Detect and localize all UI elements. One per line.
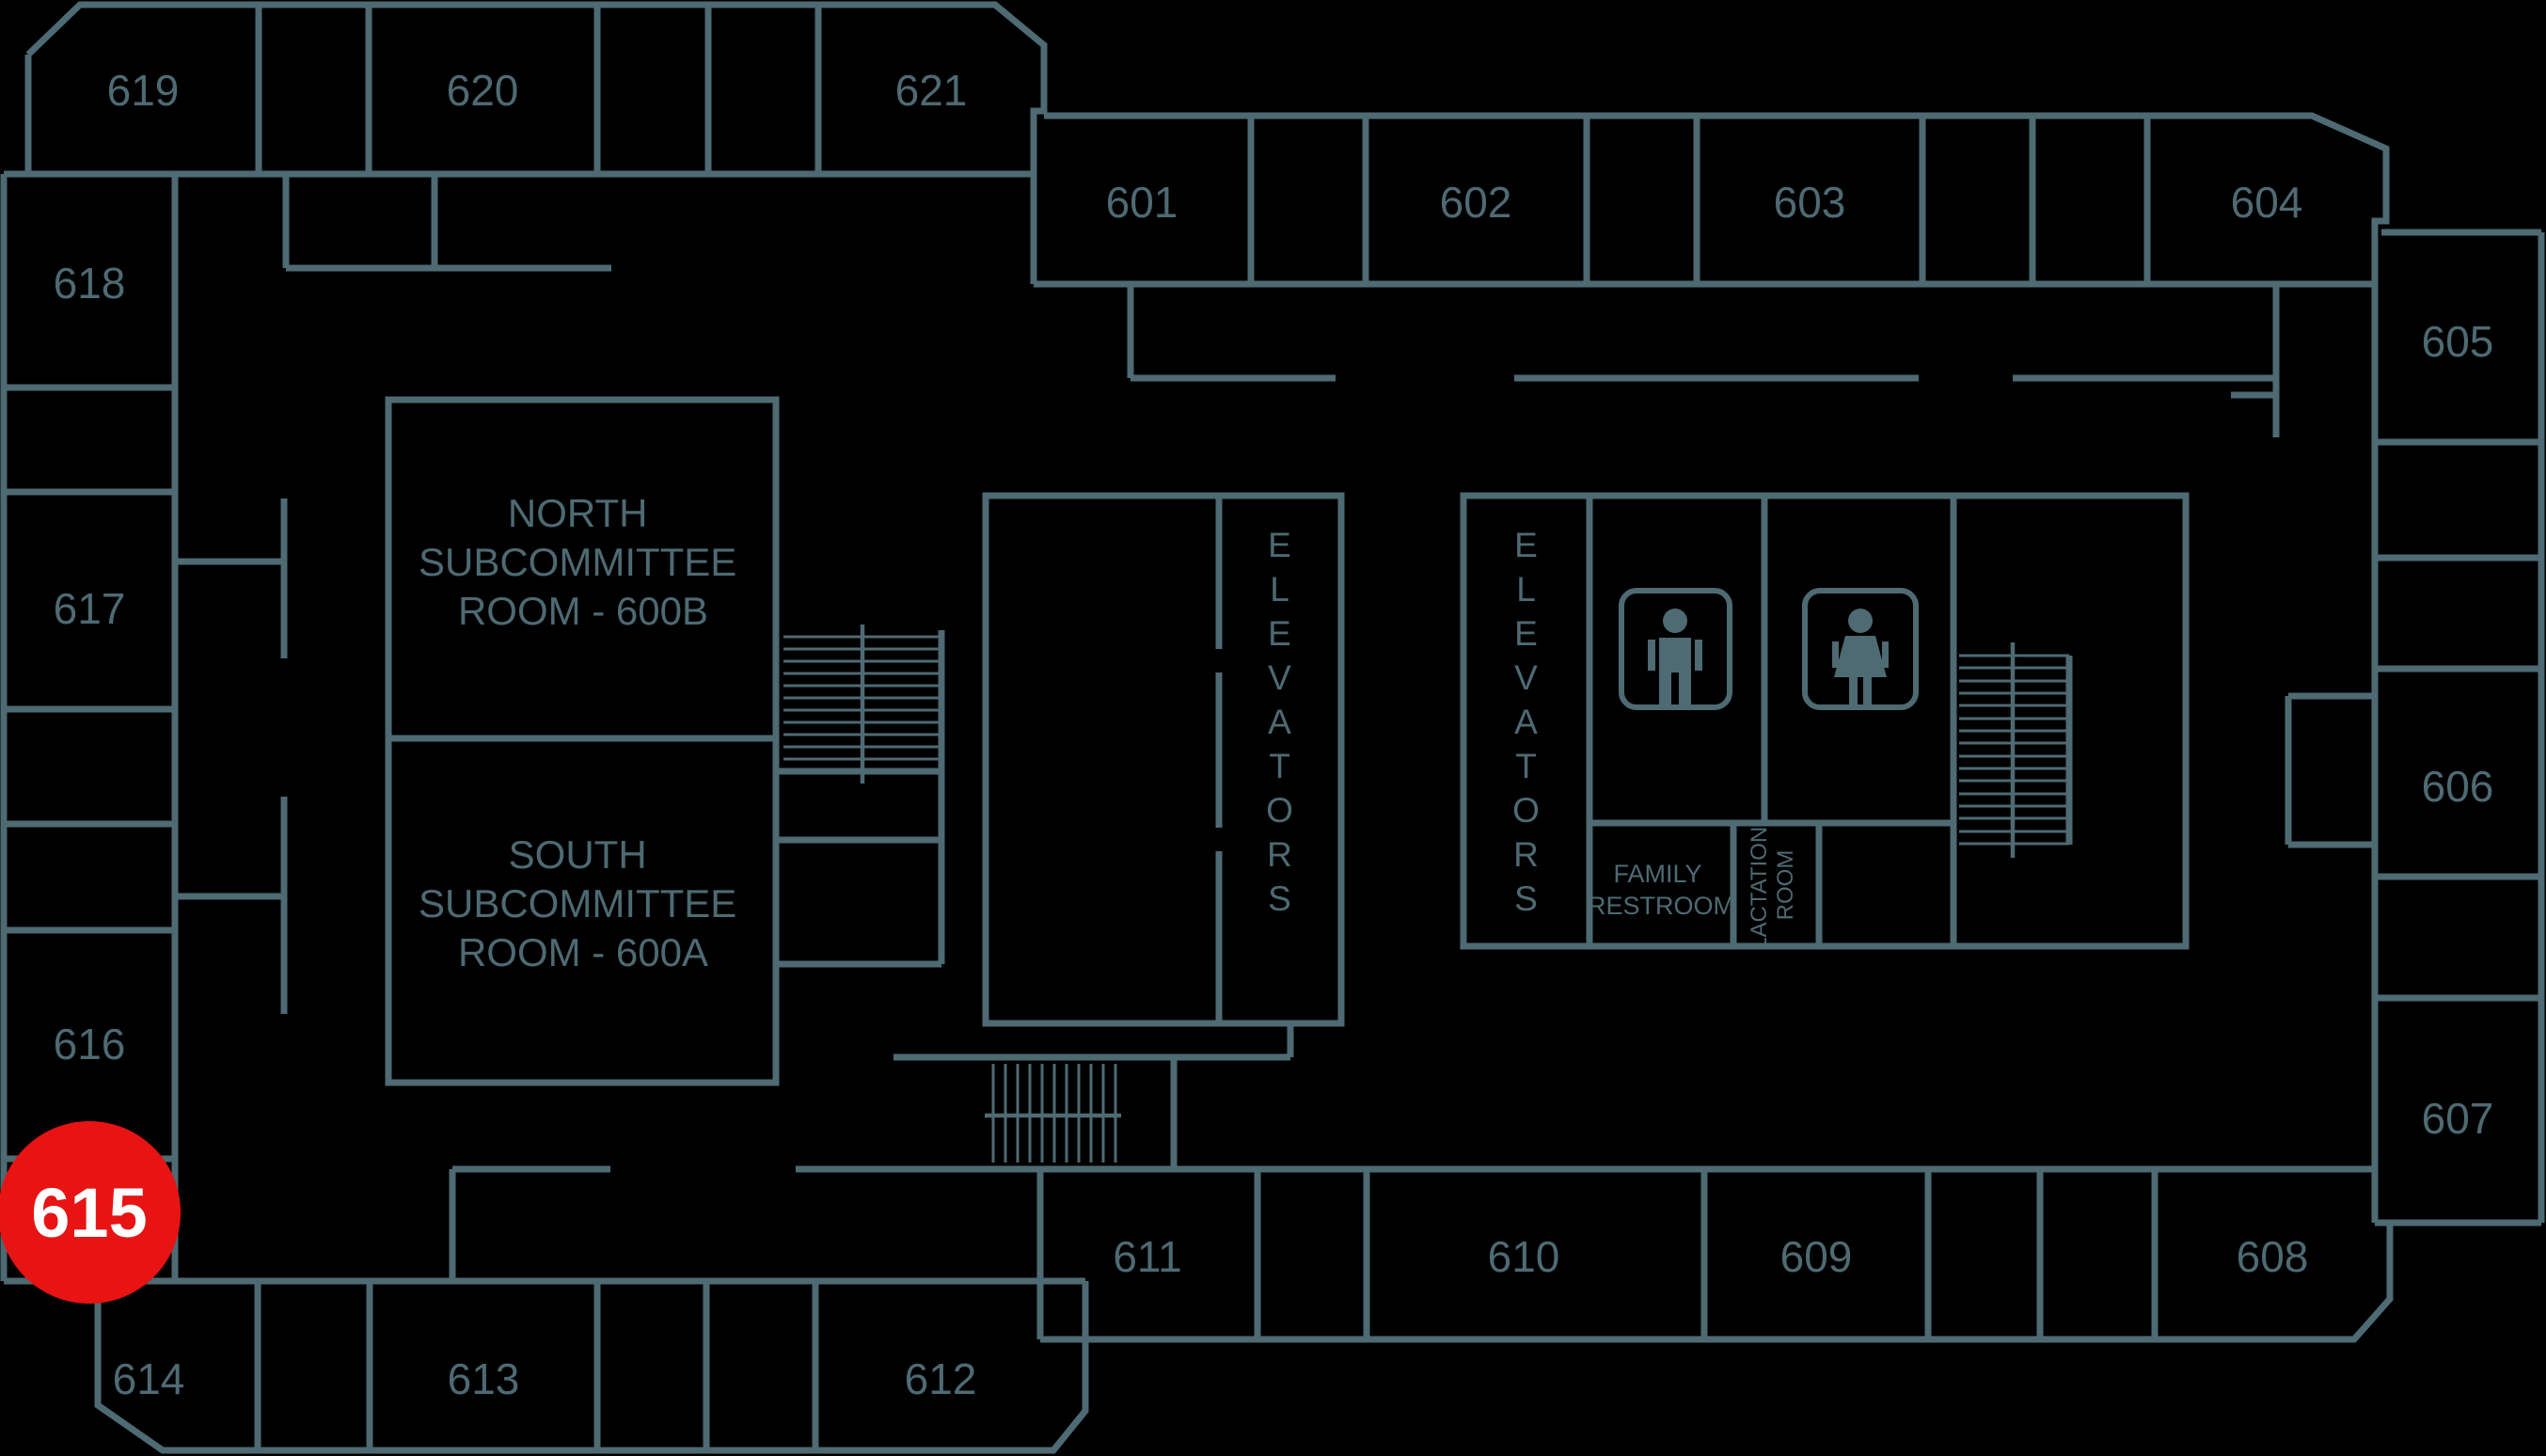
room-618-label: 618 (54, 259, 126, 308)
room-620-label: 620 (447, 66, 519, 115)
room-604-label: 604 (2231, 178, 2303, 227)
room-621-label: 621 (895, 66, 968, 115)
room-617-label: 617 (54, 584, 126, 633)
elevators-left-label: ELEVATORS (1266, 526, 1294, 918)
room-602-label: 602 (1440, 178, 1512, 227)
room-616-label: 616 (54, 1020, 126, 1068)
room-614-label: 614 (113, 1354, 185, 1403)
lactation-room-label: LACTATION ROOM (1747, 820, 1798, 950)
room-610-label: 610 (1488, 1232, 1560, 1281)
room-601-label: 601 (1106, 178, 1178, 227)
room-615-marker: 615 (0, 1121, 181, 1304)
room-609-label: 609 (1780, 1232, 1853, 1281)
room-606-label: 606 (2422, 762, 2494, 811)
women-restroom-icon (1805, 591, 1916, 707)
room-608-label: 608 (2237, 1232, 2309, 1281)
room-607-label: 607 (2422, 1094, 2494, 1143)
room-612-label: 612 (905, 1354, 977, 1403)
staircase-right (1959, 642, 2069, 858)
room-603-label: 603 (1774, 178, 1846, 227)
room-611-label: 611 (1113, 1232, 1181, 1281)
room-605-label: 605 (2422, 317, 2494, 366)
room-619-label: 619 (107, 66, 180, 115)
elevators-right-label: ELEVATORS (1512, 526, 1541, 918)
family-restroom-label: FAMILY RESTROOM (1588, 860, 1734, 920)
north-subcommittee-label: NORTH SUBCOMMITTEE ROOM - 600B (419, 491, 748, 633)
floorplan-svg: 619 620 621 601 602 603 604 605 606 607 … (0, 0, 2546, 1456)
south-subcommittee-label: SOUTH SUBCOMMITTEE ROOM - 600A (419, 832, 748, 974)
staircase-bottom (985, 1064, 1121, 1163)
staircase-left (783, 625, 941, 783)
room-613-label: 613 (448, 1354, 520, 1403)
room-615-label: 615 (31, 1174, 147, 1252)
men-restroom-icon (1621, 591, 1730, 710)
